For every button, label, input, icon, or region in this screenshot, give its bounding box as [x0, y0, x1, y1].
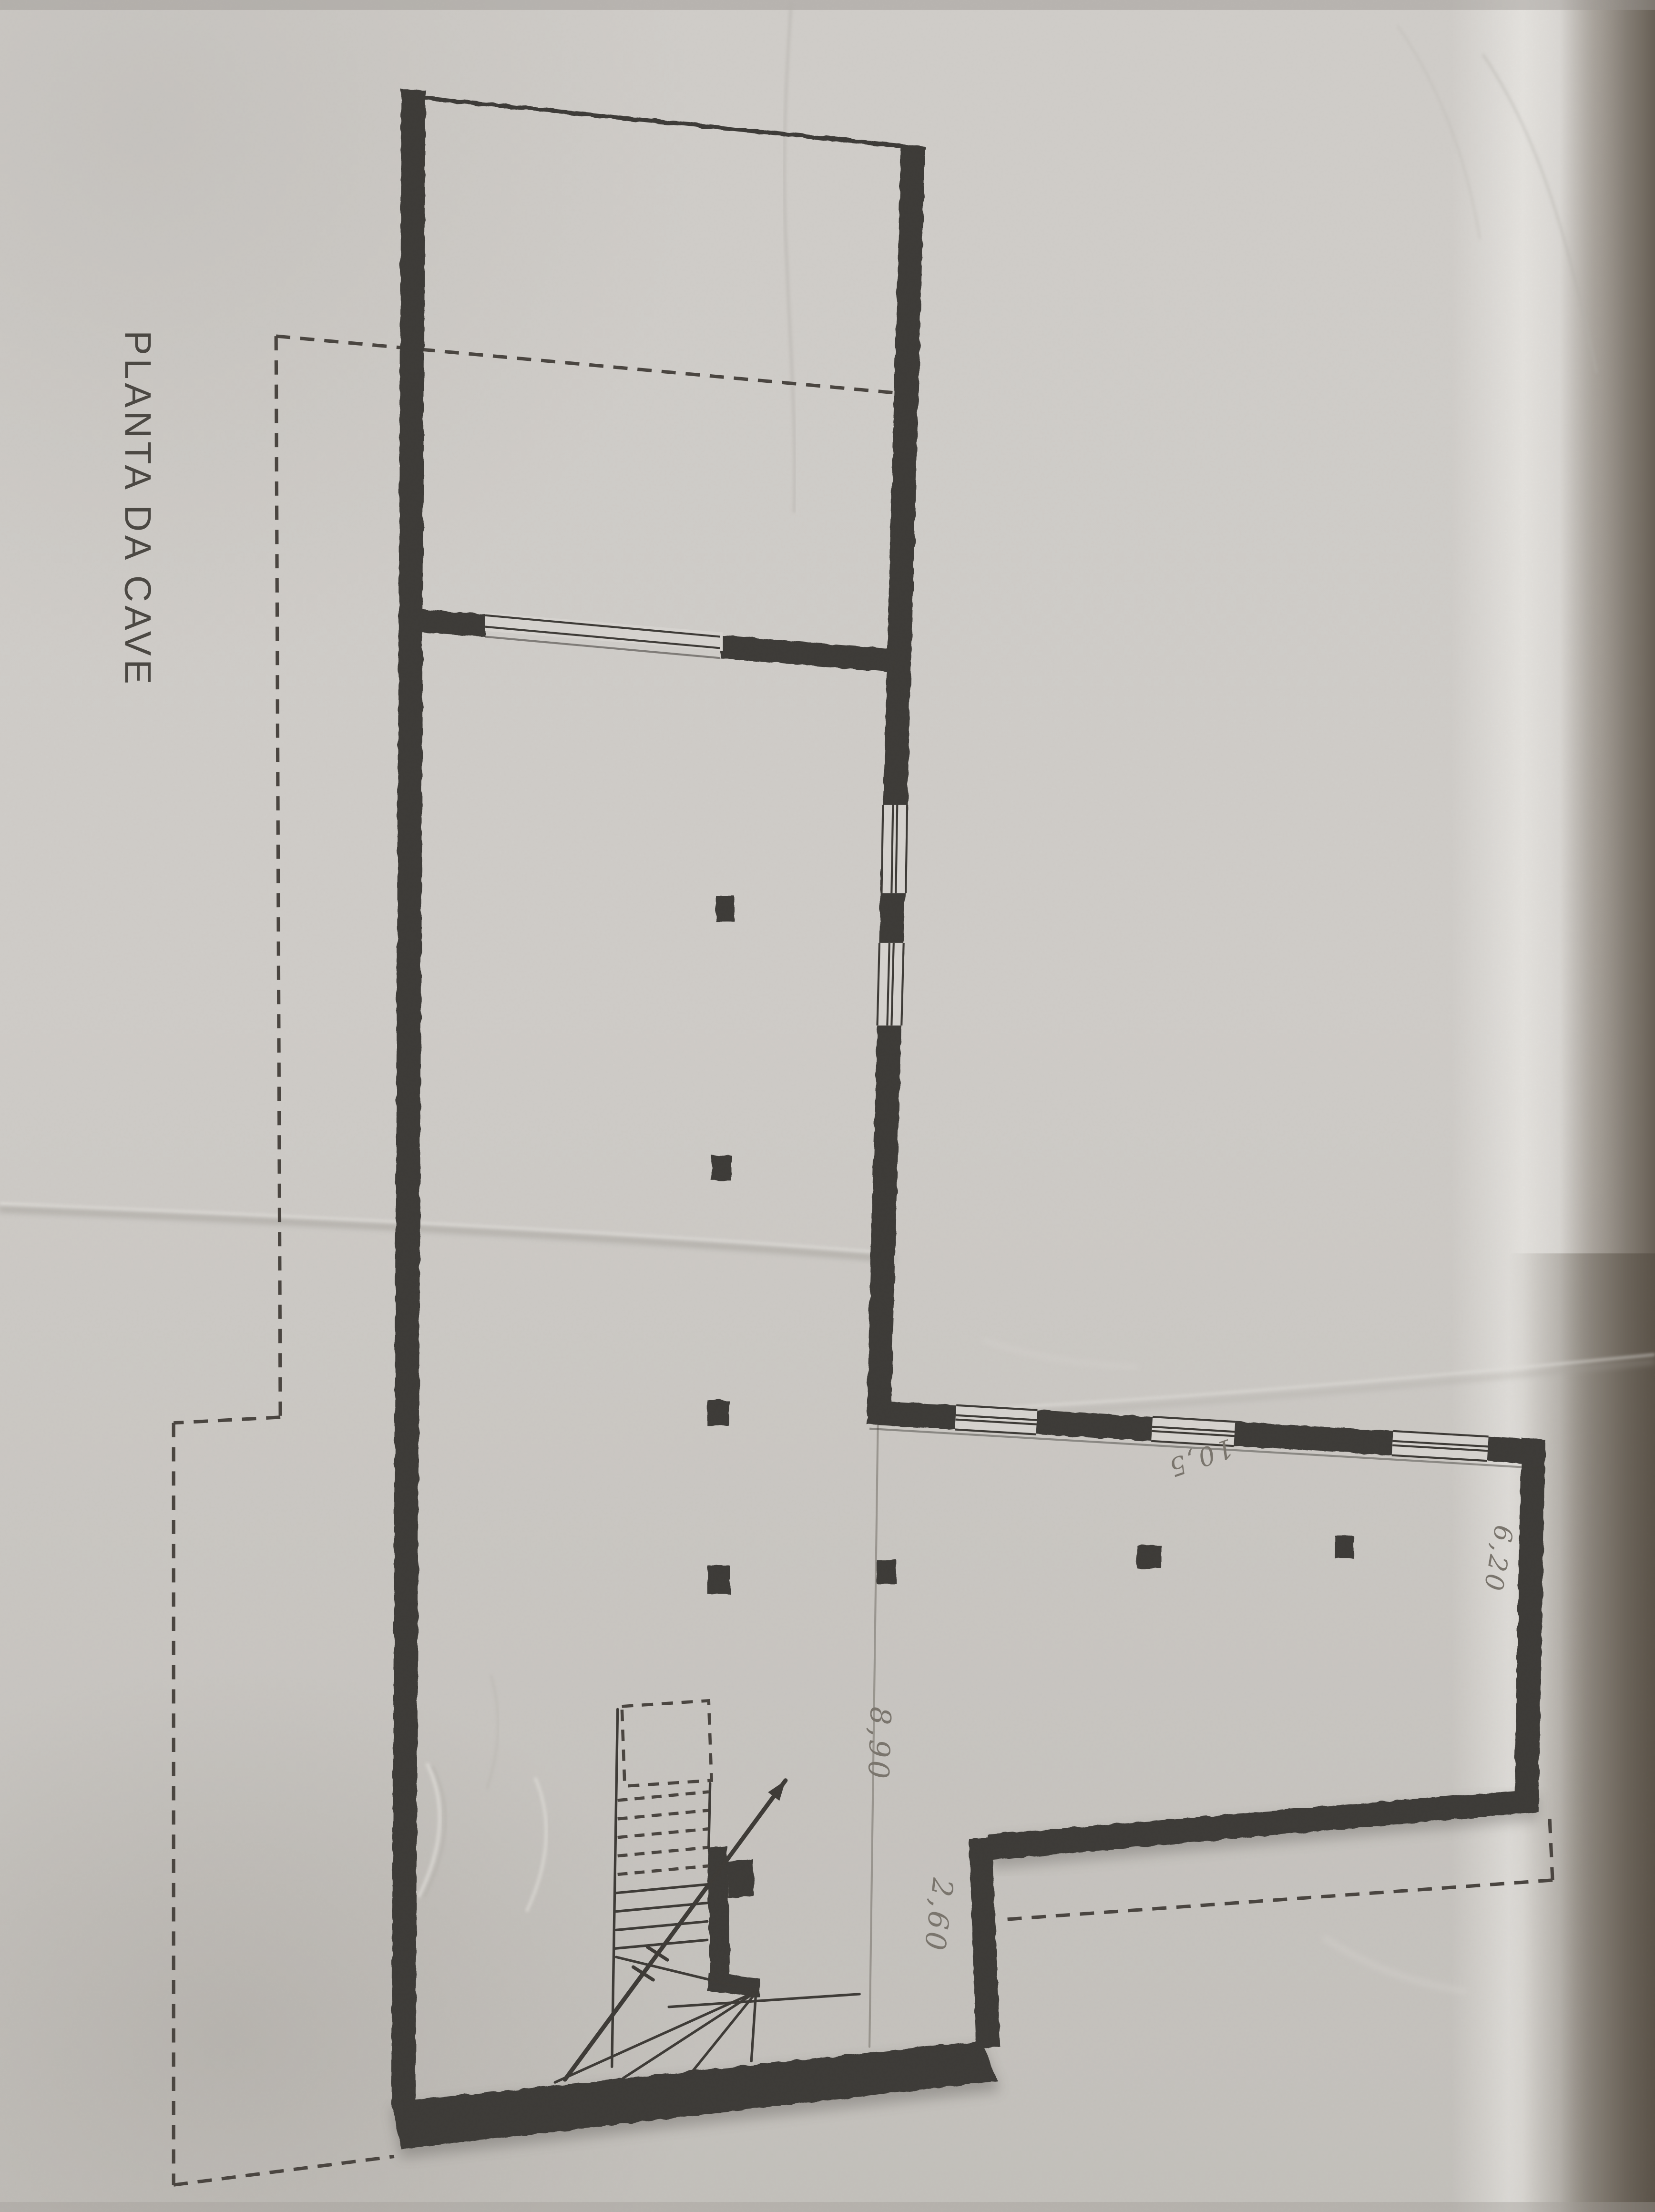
paper-grain [0, 0, 1655, 2212]
scanned-floor-plan-page: PLANTA DA CAVE 8,90 2,60 10,5 6,20 [0, 0, 1655, 2212]
floor-plan-drawing: PLANTA DA CAVE 8,90 2,60 10,5 6,20 [0, 0, 1655, 2212]
